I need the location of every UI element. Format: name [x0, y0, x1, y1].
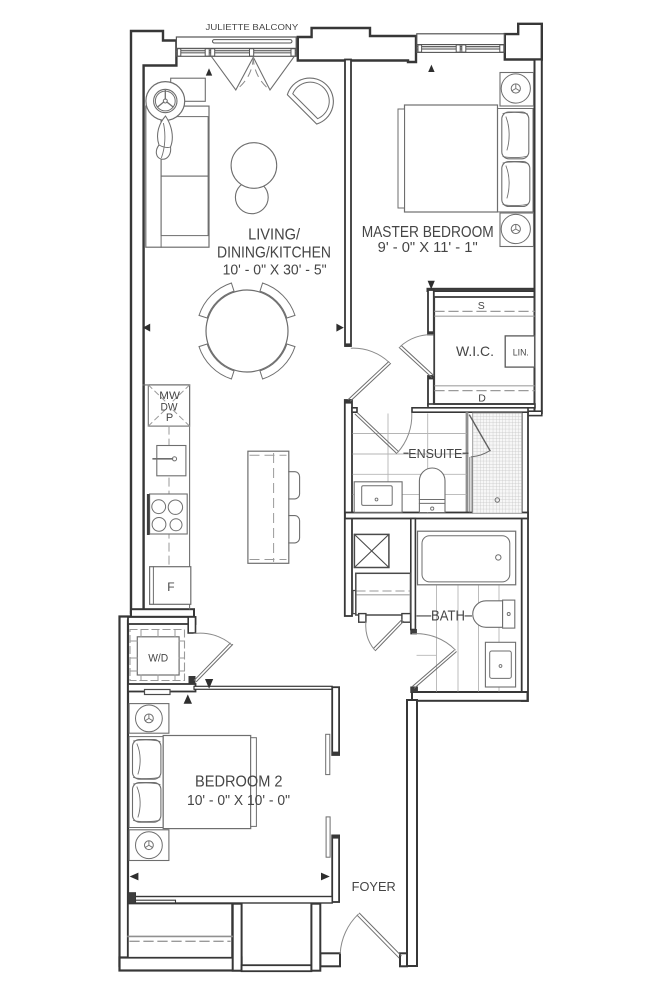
svg-text:W/D: W/D — [148, 652, 168, 664]
svg-text:P: P — [166, 412, 173, 424]
svg-text:LIVING/: LIVING/ — [248, 226, 301, 243]
svg-text:BEDROOM 2: BEDROOM 2 — [195, 774, 283, 791]
svg-text:F: F — [167, 580, 174, 594]
svg-text:10' - 0" X 30' - 5": 10' - 0" X 30' - 5" — [223, 263, 327, 279]
svg-text:LIN.: LIN. — [513, 348, 529, 359]
svg-text:DINING/KITCHEN: DINING/KITCHEN — [217, 245, 331, 262]
svg-text:D: D — [478, 393, 486, 405]
svg-text:JULIETTE BALCONY: JULIETTE BALCONY — [206, 22, 299, 32]
svg-text:9' - 0" X 11' - 1": 9' - 0" X 11' - 1" — [378, 240, 478, 256]
svg-text:FOYER: FOYER — [352, 880, 396, 894]
svg-text:BATH: BATH — [431, 609, 465, 625]
svg-text:W.I.C.: W.I.C. — [456, 343, 494, 359]
svg-text:MASTER BEDROOM: MASTER BEDROOM — [362, 224, 494, 241]
svg-text:10' - 0" X 10' - 0": 10' - 0" X 10' - 0" — [187, 793, 290, 809]
svg-text:S: S — [478, 300, 485, 312]
svg-text:ENSUITE: ENSUITE — [408, 447, 462, 461]
